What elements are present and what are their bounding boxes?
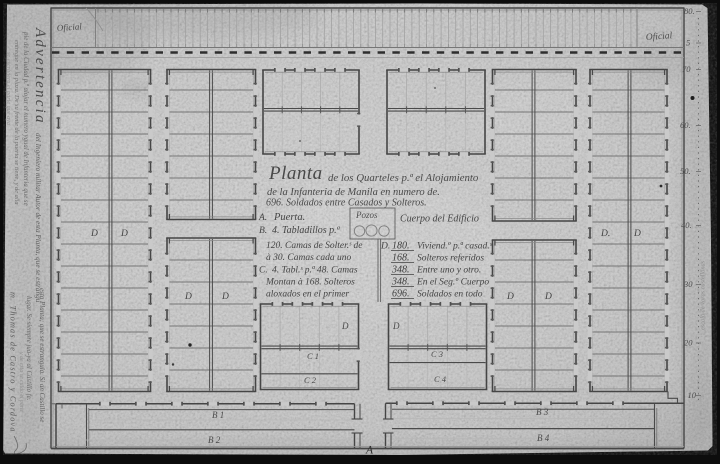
svg-text:y de esta se cuida el parte: y de esta se cuida el parte bbox=[18, 351, 24, 413]
svg-text:D: D bbox=[184, 292, 192, 302]
svg-text:escala de varas castellanas: escala de varas castellanas bbox=[700, 260, 707, 330]
svg-text:180.: 180. bbox=[392, 240, 410, 251]
svg-text:Cuerpo del Edificio: Cuerpo del Edificio bbox=[400, 214, 479, 225]
svg-text:D: D bbox=[392, 321, 400, 331]
svg-text:50.: 50. bbox=[680, 166, 691, 176]
svg-text:D: D bbox=[120, 229, 128, 239]
svg-text:del Ingeniero militar Autor de: del Ingeniero militar Autor de esta Plan… bbox=[34, 133, 42, 303]
svg-text:En el Seg.º Cuerpo: En el Seg.º Cuerpo bbox=[416, 277, 489, 287]
svg-text:m. Thomas de Castro y Cordova: m. Thomas de Castro y Cordova bbox=[9, 292, 18, 433]
svg-text:Puerta.: Puerta. bbox=[273, 212, 305, 223]
svg-text:120. Camas de Solter.ˢ de: 120. Camas de Solter.ˢ de bbox=[266, 241, 362, 251]
svg-text:à 30. Camas cada uno: à 30. Camas cada uno bbox=[266, 253, 351, 263]
svg-text:168.: 168. bbox=[392, 252, 410, 263]
svg-text:40.: 40. bbox=[681, 220, 692, 230]
svg-text:Montan à 168. Solteros: Montan à 168. Solteros bbox=[265, 278, 355, 288]
svg-text:D.: D. bbox=[600, 229, 610, 239]
svg-text:Solteros referidos: Solteros referidos bbox=[417, 252, 484, 263]
svg-text:Pozos: Pozos bbox=[355, 210, 378, 220]
svg-text:348.: 348. bbox=[391, 276, 410, 287]
svg-text:D: D bbox=[90, 229, 98, 239]
svg-text:D: D bbox=[544, 292, 552, 302]
svg-text:5: 5 bbox=[686, 38, 690, 48]
svg-text:70: 70 bbox=[682, 64, 691, 74]
svg-text:B 3: B 3 bbox=[536, 407, 549, 417]
svg-text:C 3: C 3 bbox=[431, 349, 443, 359]
svg-text:Advertencia: Advertencia bbox=[32, 27, 48, 125]
svg-text:Entre uno y otro.: Entre uno y otro. bbox=[416, 265, 481, 275]
svg-text:A: A bbox=[365, 445, 374, 457]
svg-text:Oficial: Oficial bbox=[645, 30, 672, 43]
svg-text:80.: 80. bbox=[684, 6, 695, 16]
svg-text:se escriviera el parte que aya: se escriviera el parte que aya bbox=[5, 52, 12, 125]
svg-text:esta Planta; que se estrangula: esta Planta; que se estrangula. Si an Ca… bbox=[38, 288, 46, 422]
svg-text:B 1: B 1 bbox=[212, 410, 224, 420]
svg-text:D.: D. bbox=[380, 241, 390, 251]
svg-text:Planta: Planta bbox=[268, 163, 323, 184]
svg-text:696.: 696. bbox=[392, 288, 410, 299]
svg-text:C 1: C 1 bbox=[307, 351, 319, 361]
svg-text:Viviend.º p.ª casad.ˢ: Viviend.º p.ª casad.ˢ bbox=[417, 241, 493, 251]
svg-text:4. Tabl.ˢ p.ª 48. Camas: 4. Tabl.ˢ p.ª 48. Camas bbox=[272, 266, 358, 276]
svg-text:4. Tabladillos p.ª: 4. Tabladillos p.ª bbox=[272, 225, 341, 236]
svg-text:pie de la Ciudad p.ª alojar el: pie de la Ciudad p.ª alojar el numero yg… bbox=[22, 31, 29, 206]
svg-text:C.: C. bbox=[259, 266, 268, 276]
svg-text:348.: 348. bbox=[391, 264, 410, 275]
svg-text:B.: B. bbox=[259, 226, 267, 236]
svg-text:60.: 60. bbox=[680, 120, 691, 130]
svg-text:D: D bbox=[221, 292, 229, 302]
svg-text:696. Soldados entre Casados y: 696. Soldados entre Casados y Solteros. bbox=[266, 198, 427, 209]
svg-text:de los Quarteles p.ª el Alojam: de los Quarteles p.ª el Alojamiento bbox=[328, 172, 479, 184]
svg-text:de la Infanteria de Manila en: de la Infanteria de Manila en numero de. bbox=[267, 187, 440, 198]
svg-text:C 2: C 2 bbox=[304, 375, 317, 385]
svg-text:Soldados en todo: Soldados en todo bbox=[417, 289, 483, 299]
svg-text:10: 10 bbox=[688, 390, 697, 400]
svg-text:entregue en la plaza. De su fr: entregue en la plaza. De su frente de la… bbox=[13, 40, 20, 205]
svg-text:aloxados en el primer: aloxados en el primer bbox=[266, 290, 349, 300]
svg-text:D: D bbox=[506, 292, 514, 302]
svg-text:Oficial: Oficial bbox=[56, 21, 82, 33]
svg-text:A.: A. bbox=[258, 213, 267, 223]
svg-text:B 2: B 2 bbox=[208, 435, 221, 445]
svg-text:B 4: B 4 bbox=[537, 433, 550, 443]
svg-text:D: D bbox=[341, 321, 349, 331]
svg-text:30: 30 bbox=[683, 279, 693, 289]
svg-text:D: D bbox=[633, 229, 641, 239]
svg-text:lugar. Se siempre jua-ya al Ca: lugar. Se siempre jua-ya al Castillo fe. bbox=[25, 296, 32, 401]
svg-text:20: 20 bbox=[684, 338, 693, 348]
svg-text:C 4: C 4 bbox=[434, 374, 447, 384]
